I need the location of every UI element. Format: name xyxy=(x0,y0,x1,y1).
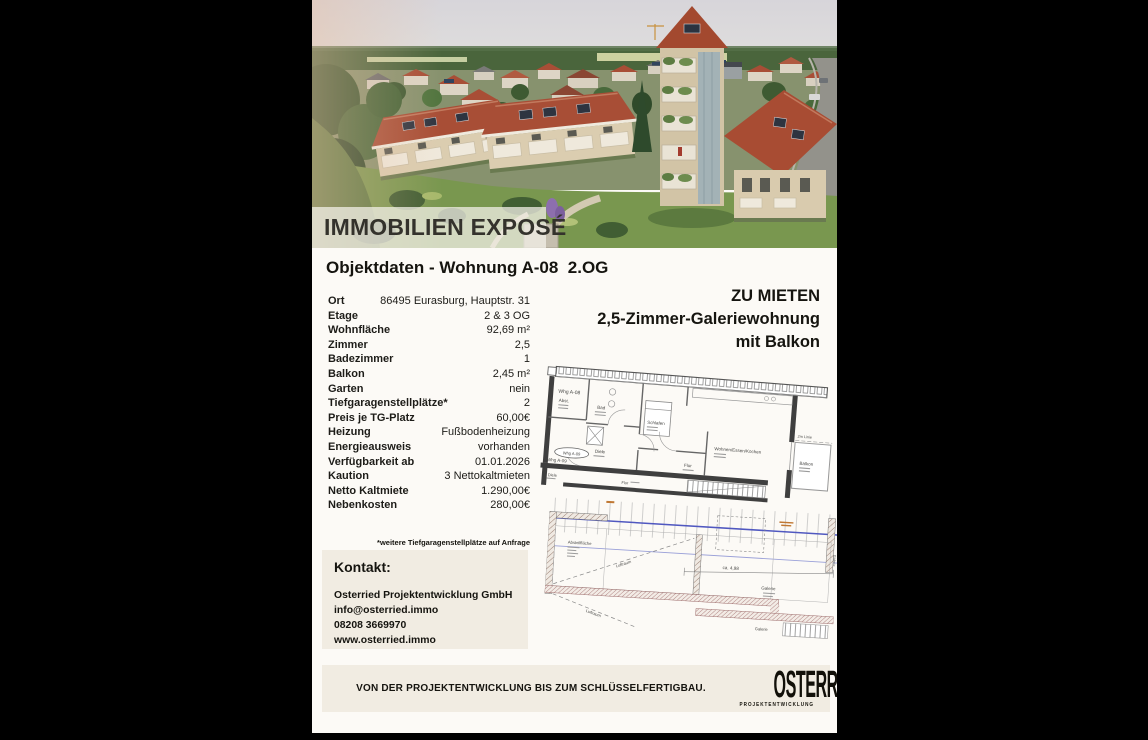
plan1-neighbor-unit: Whg A-09 xyxy=(547,457,568,464)
spec-row: Netto Kaltmiete1.290,00€ xyxy=(328,485,530,500)
contact-company: Osterried Projektentwicklung GmbH xyxy=(334,588,516,603)
spec-row: Nebenkosten280,00€ xyxy=(328,499,530,514)
spec-row: Wohnfläche92,69 m² xyxy=(328,324,530,339)
spec-label: Netto Kaltmiete xyxy=(328,485,409,497)
spec-label: Etage xyxy=(328,310,358,322)
spec-value: 2,45 m² xyxy=(493,368,530,380)
spec-value: 2,5 xyxy=(515,339,530,351)
offer-line-1: ZU MIETEN xyxy=(597,285,820,308)
contact-phone: 08208 3669970 xyxy=(334,618,516,633)
contact-website: www.osterried.immo xyxy=(334,633,516,648)
plan2-abstell-label: Abstellfläche xyxy=(568,540,593,546)
spec-value: 92,69 m² xyxy=(487,324,530,336)
spec-row: Tiefgaragenstellplätze*2 xyxy=(328,397,530,412)
spec-row: Etage2 & 3 OG xyxy=(328,310,530,325)
expose-banner-label: IMMOBILIEN EXPOSÉ xyxy=(324,214,566,241)
plan2-luftraum-2: Luftraum xyxy=(585,608,602,618)
spec-row: Badezimmer1 xyxy=(328,353,530,368)
offer-headline: ZU MIETEN 2,5-Zimmer-Galeriewohnung mit … xyxy=(597,285,820,354)
spec-label: Nebenkosten xyxy=(328,499,397,511)
spec-value: 60,00€ xyxy=(496,412,530,424)
plan2-dim-label: ca. 4,98 xyxy=(722,565,739,571)
spec-label: Balkon xyxy=(328,368,365,380)
contact-heading: Kontakt: xyxy=(334,559,516,575)
spec-label: Badezimmer xyxy=(328,353,393,365)
spec-label: Ort xyxy=(328,295,345,307)
plan1-room-wohnen: Wohnen/Essen/Kochen xyxy=(714,446,762,455)
logo-wordmark: OSTERRIED xyxy=(774,668,814,700)
spec-value: vorhanden xyxy=(478,441,530,453)
spec-value: 2 & 3 OG xyxy=(484,310,530,322)
floorplan-level-2: Abstellfläche Luftraum Luftraum ca. 4,98… xyxy=(543,495,837,640)
spec-value: nein xyxy=(509,383,530,395)
spec-row: Kaution3 Nettokaltmieten xyxy=(328,470,530,485)
spec-value: 1.290,00€ xyxy=(481,485,530,497)
plan1-room-bad: Bad xyxy=(597,405,606,411)
offer-line-2: 2,5-Zimmer-Galeriewohnung xyxy=(597,308,820,331)
plan2-galerie-1: Galerie xyxy=(761,585,776,591)
plan2-galerie-side: Galerie xyxy=(832,555,837,567)
osterried-logo: OSTERRIED PROJEKTENTWICKLUNG xyxy=(726,670,830,708)
spec-row: HeizungFußbodenheizung xyxy=(328,426,530,441)
plan1-dim-label: 2m Linie xyxy=(797,435,812,440)
spec-value: Fußbodenheizung xyxy=(441,426,530,438)
spec-value: 86495 Eurasburg, Hauptstr. 31 xyxy=(380,295,530,307)
spec-value: 2 xyxy=(524,397,530,409)
spec-label: Kaution xyxy=(328,470,369,482)
logo-subtitle: PROJEKTENTWICKLUNG xyxy=(733,702,814,708)
plan1-unit-label: Whg A-08 xyxy=(558,389,581,397)
footnote: *weitere Tiefgaragenstellplätze auf Anfr… xyxy=(328,538,530,547)
spec-row: Ort86495 Eurasburg, Hauptstr. 31 xyxy=(328,295,530,310)
spec-label: Energieausweis xyxy=(328,441,411,453)
spec-label: Tiefgaragenstellplätze* xyxy=(328,397,448,409)
spec-label: Garten xyxy=(328,383,363,395)
spec-label: Wohnfläche xyxy=(328,324,390,336)
plan1-room-abst: Abst. xyxy=(559,398,570,404)
spec-row: Zimmer2,5 xyxy=(328,339,530,354)
spec-row: Verfügbarkeit ab01.01.2026 xyxy=(328,456,530,471)
hero-photo: IMMOBILIEN EXPOSÉ xyxy=(312,0,837,248)
spec-value: 1 xyxy=(524,353,530,365)
spec-row: Balkon2,45 m² xyxy=(328,368,530,383)
offer-line-3: mit Balkon xyxy=(597,331,820,354)
spec-row: Preis je TG-Platz60,00€ xyxy=(328,412,530,427)
expose-banner: IMMOBILIEN EXPOSÉ xyxy=(312,207,546,248)
plan2-luftraum-1: Luftraum xyxy=(615,559,632,569)
plan1-room-balkon: Balkon xyxy=(799,461,814,467)
spec-row: Energieausweisvorhanden xyxy=(328,441,530,456)
spec-label: Zimmer xyxy=(328,339,368,351)
plan2-galerie-2: Galerie xyxy=(755,626,769,632)
contact-email: info@osterried.immo xyxy=(334,603,516,618)
plan1-room-diele: Diele xyxy=(595,449,606,455)
page-title: Objektdaten - Wohnung A-08 2.OG xyxy=(326,258,608,278)
footer-banner: VON DER PROJEKTENTWICKLUNG BIS ZUM SCHLÜ… xyxy=(322,665,830,712)
spec-label: Heizung xyxy=(328,426,371,438)
spec-value: 01.01.2026 xyxy=(475,456,530,468)
spec-label: Verfügbarkeit ab xyxy=(328,456,414,468)
footer-slogan: VON DER PROJEKTENTWICKLUNG BIS ZUM SCHLÜ… xyxy=(322,683,726,694)
expose-page: IMMOBILIEN EXPOSÉ Objektdaten - Wohnung … xyxy=(312,0,837,733)
spec-label: Preis je TG-Platz xyxy=(328,412,415,424)
spec-value: 3 Nettokaltmieten xyxy=(444,470,530,482)
plan1-neighbor-diele: Diele xyxy=(548,472,558,478)
spec-table: Ort86495 Eurasburg, Hauptstr. 31 Etage2 … xyxy=(328,295,530,514)
spec-value: 280,00€ xyxy=(490,499,530,511)
plan1-room-flur: Flur xyxy=(684,463,693,469)
spec-row: Gartennein xyxy=(328,383,530,398)
plan1-neighbor-flur: Flur xyxy=(621,480,629,486)
contact-card: Kontakt: Osterried Projektentwicklung Gm… xyxy=(322,550,528,649)
